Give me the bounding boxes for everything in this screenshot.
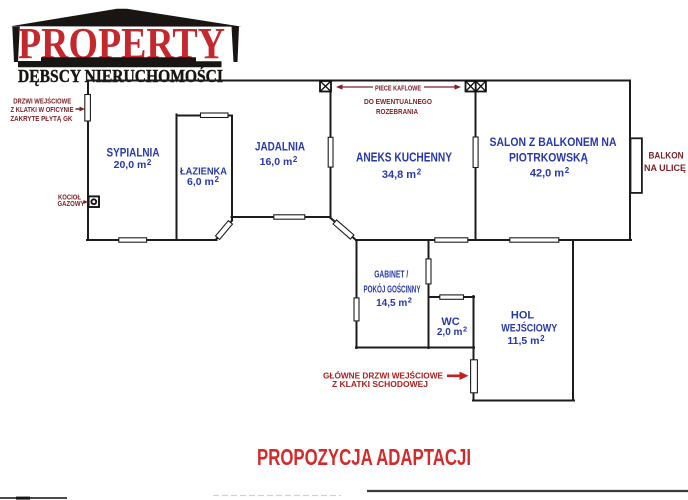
svg-text:SALON Z BALKONEM NA: SALON Z BALKONEM NA [490,135,617,149]
svg-text:11,5 m2: 11,5 m2 [507,334,545,347]
svg-text:Z KLATKI W OFICYNIE: Z KLATKI W OFICYNIE [11,107,74,114]
svg-text:ZAKRYTE PŁYTĄ GK: ZAKRYTE PŁYTĄ GK [10,116,72,123]
svg-text:POKÓJ GOŚCINNY: POKÓJ GOŚCINNY [364,282,421,295]
svg-text:PIOTRKOWSKĄ: PIOTRKOWSKĄ [509,151,588,165]
svg-text:16,0 m2: 16,0 m2 [260,155,298,168]
svg-text:GABINET /: GABINET / [374,270,408,281]
svg-text:ROZEBRANIA: ROZEBRANIA [376,107,419,116]
svg-text:DO EWENTUALNEGO: DO EWENTUALNEGO [364,97,432,106]
svg-text:GAZOWY: GAZOWY [58,201,85,208]
svg-text:DRZWI WEJŚCIOWE: DRZWI WEJŚCIOWE [13,97,71,106]
svg-text:42,0 m2: 42,0 m2 [530,166,570,179]
svg-text:Z KLATKI SCHODOWEJ: Z KLATKI SCHODOWEJ [332,380,428,389]
svg-text:DĘBSCY NIERUCHOMOŚCI: DĘBSCY NIERUCHOMOŚCI [18,65,223,86]
svg-text:ANEKS KUCHENNY: ANEKS KUCHENNY [356,149,452,164]
svg-text:PROPOZYCJA ADAPTACJI: PROPOZYCJA ADAPTACJI [257,444,471,470]
svg-text:BALKON: BALKON [649,151,684,161]
svg-text:PIECE KAFLOWE: PIECE KAFLOWE [375,83,421,92]
svg-text:HOL: HOL [511,310,535,322]
svg-text:14,5 m2: 14,5 m2 [376,296,412,309]
svg-text:WEJŚCIOWY: WEJŚCIOWY [501,322,558,335]
svg-text:JADALNIA: JADALNIA [255,142,305,154]
svg-text:GŁÓWNE DRZWI WEJŚCIOWE: GŁÓWNE DRZWI WEJŚCIOWE [323,370,444,381]
svg-text:34,8 m2: 34,8 m2 [382,168,422,181]
svg-text:SYPIALNIA: SYPIALNIA [107,148,160,160]
svg-text:20,0 m2: 20,0 m2 [114,158,152,171]
svg-text:NA ULICĘ: NA ULICĘ [644,163,686,173]
